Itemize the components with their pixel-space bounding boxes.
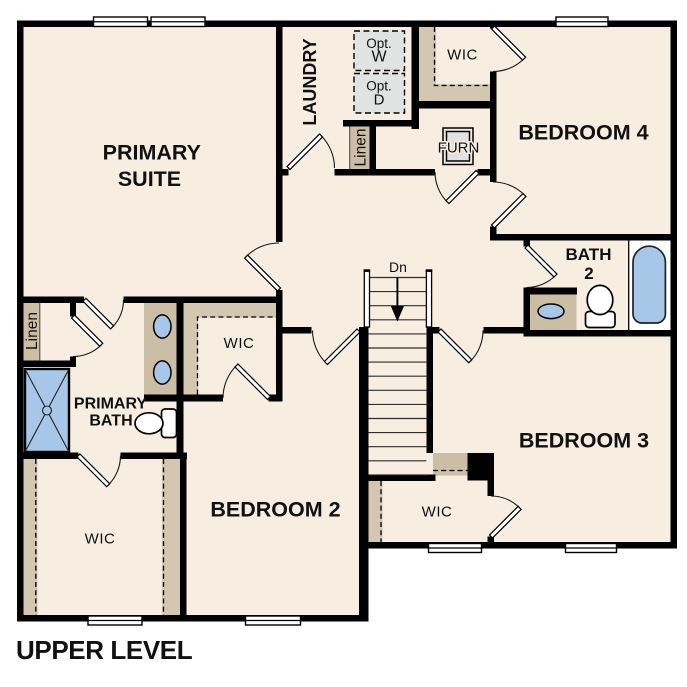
svg-text:Linen: Linen (353, 129, 370, 167)
svg-text:2: 2 (584, 264, 593, 283)
svg-text:SUITE: SUITE (118, 167, 181, 191)
svg-text:BATH: BATH (89, 413, 132, 430)
svg-text:WIC: WIC (224, 335, 255, 352)
svg-text:UPPER LEVEL: UPPER LEVEL (16, 635, 193, 665)
svg-text:BATH: BATH (566, 245, 612, 264)
svg-text:FURN: FURN (438, 140, 480, 157)
svg-text:WIC: WIC (447, 47, 478, 64)
svg-text:Linen: Linen (24, 312, 41, 350)
svg-text:BEDROOM 4: BEDROOM 4 (518, 121, 648, 145)
svg-text:WIC: WIC (85, 531, 116, 548)
svg-text:Dn: Dn (389, 259, 407, 275)
svg-text:PRIMARY: PRIMARY (103, 141, 201, 165)
svg-text:BEDROOM 3: BEDROOM 3 (519, 429, 649, 453)
svg-text:WIC: WIC (422, 504, 453, 521)
svg-text:BEDROOM 2: BEDROOM 2 (210, 498, 340, 522)
svg-text:W: W (371, 49, 387, 66)
svg-text:D: D (374, 92, 385, 109)
svg-text:LAUNDRY: LAUNDRY (300, 38, 320, 125)
svg-text:PRIMARY: PRIMARY (74, 396, 148, 413)
